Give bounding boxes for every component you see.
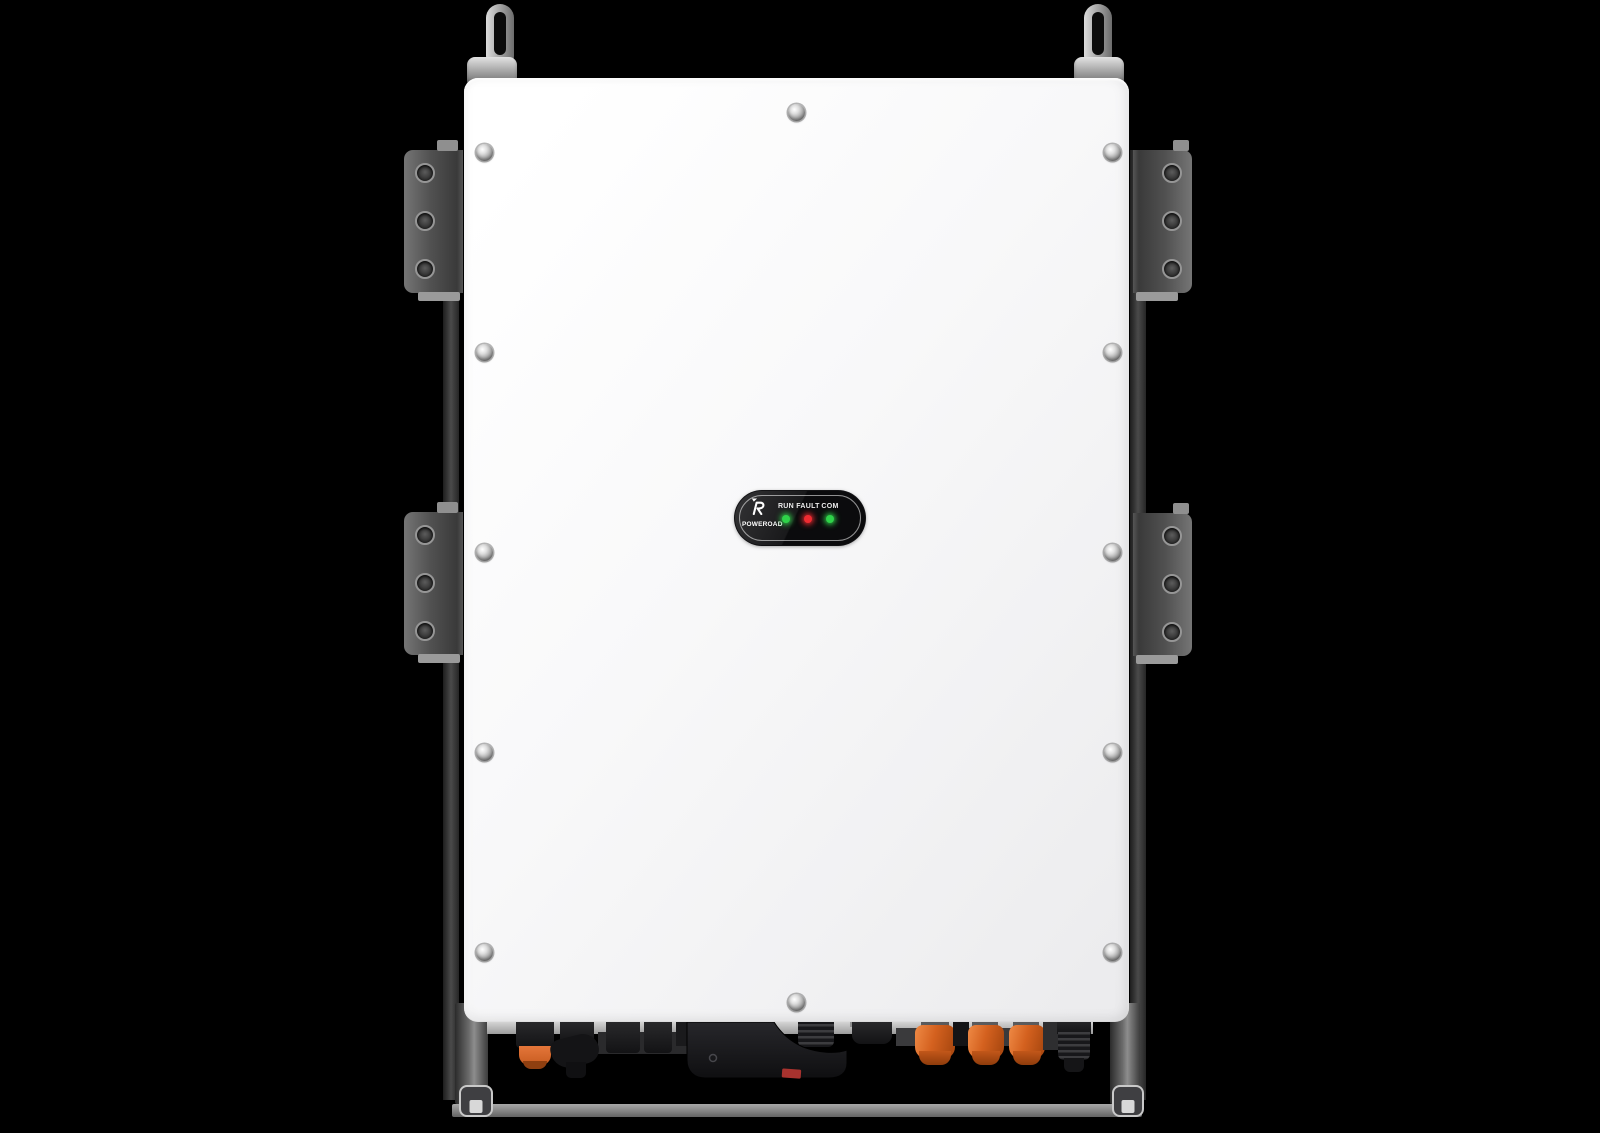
cable-cover-shape [687,1022,847,1078]
panel-screw [1104,544,1121,561]
panel-screw [1104,944,1121,961]
dc-cable-swoosh [685,1020,851,1082]
bracket-hole [415,525,435,545]
indicator-panel: POWEROAD RUN FAULT COM [735,491,865,545]
panel-screw [1104,144,1121,161]
product-photo-stage: POWEROAD RUN FAULT COM [0,0,1600,1133]
cable-red-stripe [782,1068,802,1078]
bracket-hole [415,621,435,641]
bracket-hole [415,163,435,183]
bracket-hole [1162,574,1182,594]
panel-screw [476,944,493,961]
bracket-hole [1162,163,1182,183]
connector-block [644,1018,672,1053]
led-label-com: COM [814,503,846,510]
bracket-hole [415,211,435,231]
floor-bar [452,1104,1142,1117]
panel-screw [1104,744,1121,761]
mounting-bracket-left-upper [404,150,463,293]
bracket-hole [1162,211,1182,231]
panel-screw [476,544,493,561]
com-led [826,515,834,523]
connector-spacer [953,1018,969,1046]
connector-orange-3-rim [1013,1051,1041,1065]
connector-orange-2-rim [972,1051,1000,1065]
mounting-bracket-right-upper [1133,150,1192,293]
bracket-hole [415,259,435,279]
mounting-bracket-right-lower [1133,513,1192,656]
panel-screw [788,994,805,1011]
panel-screw [476,344,493,361]
stand-foot-left [459,1085,493,1117]
connector-black-housing [516,1018,554,1048]
connector-orange-1-rim [919,1051,951,1065]
stand-foot-right [1112,1085,1144,1117]
connector-large-black-tip [1064,1058,1084,1072]
panel-screw [1104,344,1121,361]
bracket-hole [1162,622,1182,642]
led-group-com: COM [814,503,846,523]
mounting-bracket-left-lower [404,512,463,655]
bracket-hole [415,573,435,593]
bracket-hole [1162,526,1182,546]
poweroad-logo-icon [750,498,767,515]
cable-elbow-tip [566,1062,586,1078]
connector-large-black-ridged [1058,1032,1090,1060]
connector-orange-cap-rim [523,1061,547,1069]
enclosure-front-panel [464,78,1129,1022]
panel-screw [476,744,493,761]
panel-screw [476,144,493,161]
bracket-hole [1162,259,1182,279]
connector-block [606,1018,640,1053]
run-led [782,515,790,523]
fault-led [804,515,812,523]
panel-screw [788,104,805,121]
